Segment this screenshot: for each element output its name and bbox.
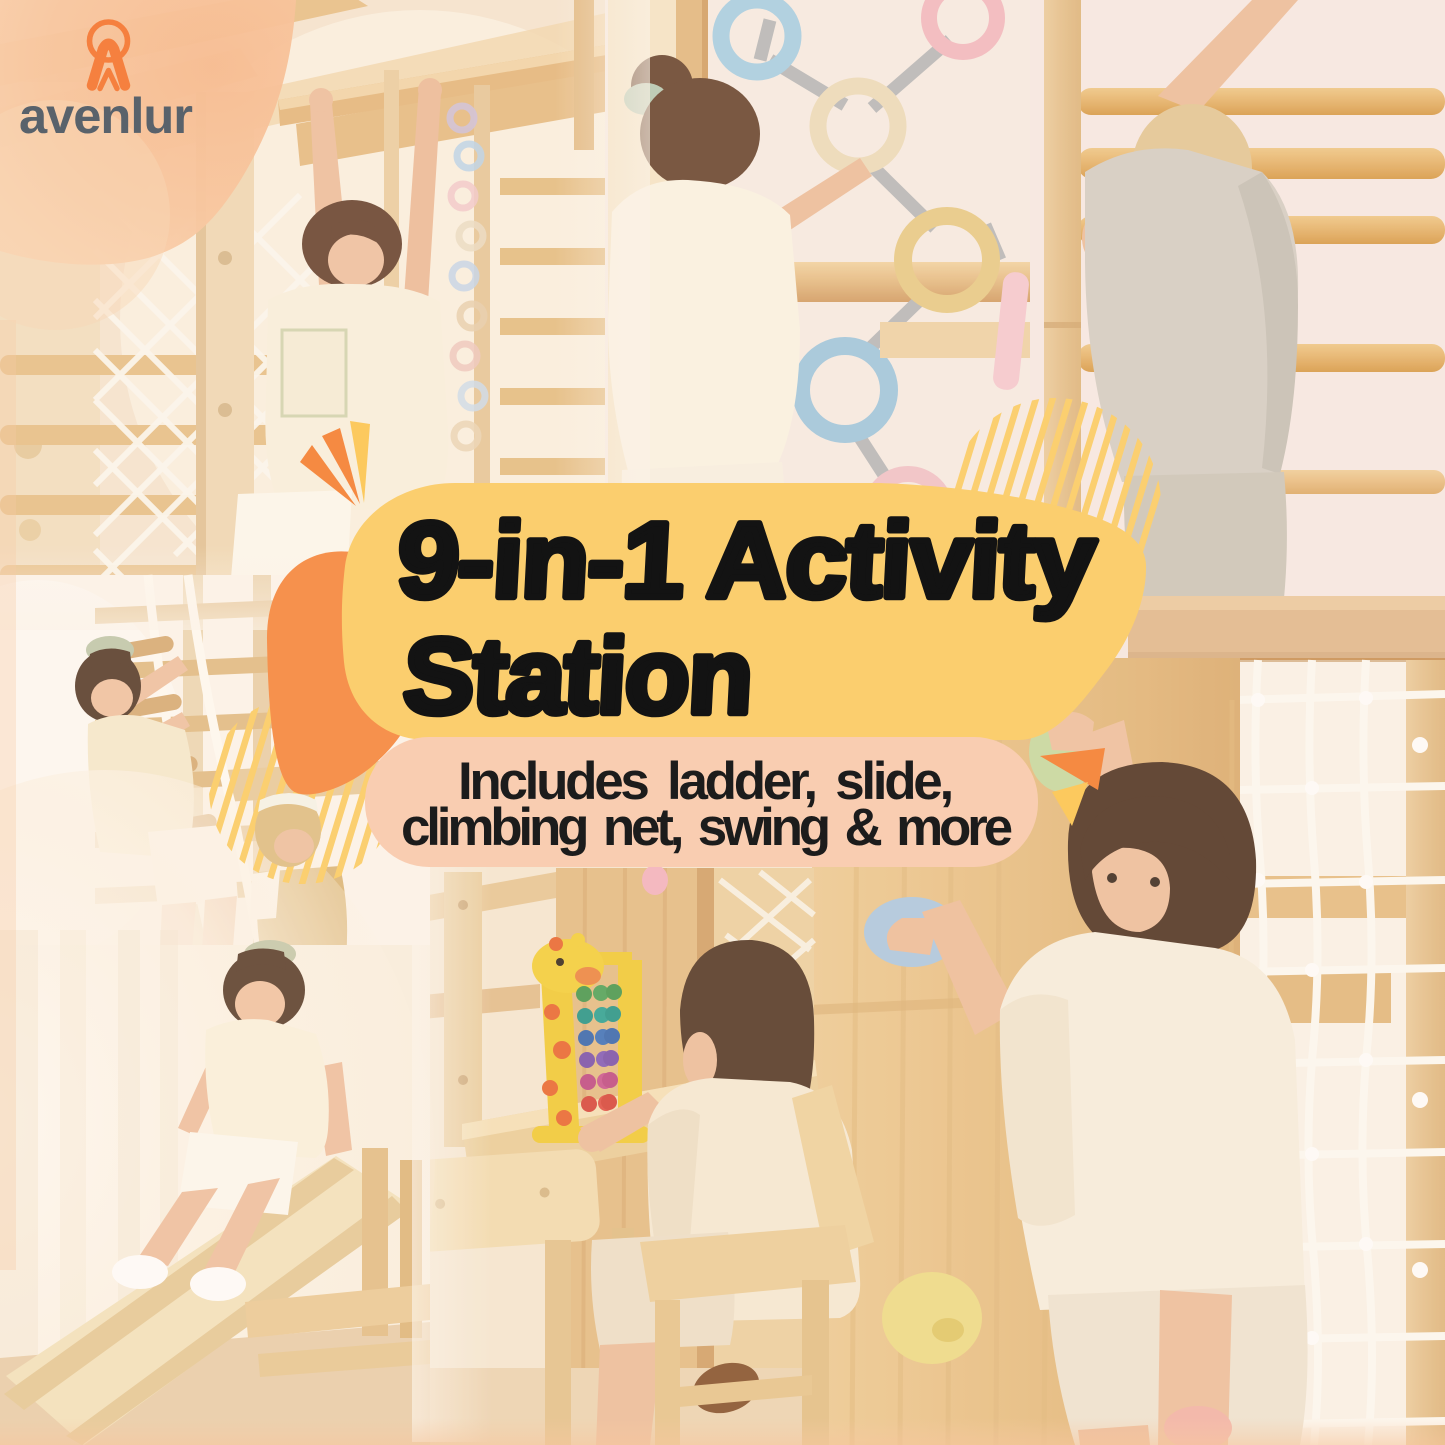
svg-text:Station: Station (400, 616, 754, 736)
svg-text:9-in-1 Activity: 9-in-1 Activity (395, 500, 1099, 620)
svg-text:avenlur: avenlur (19, 88, 193, 144)
svg-text:climbing net, swing & more: climbing net, swing & more (401, 798, 1012, 857)
